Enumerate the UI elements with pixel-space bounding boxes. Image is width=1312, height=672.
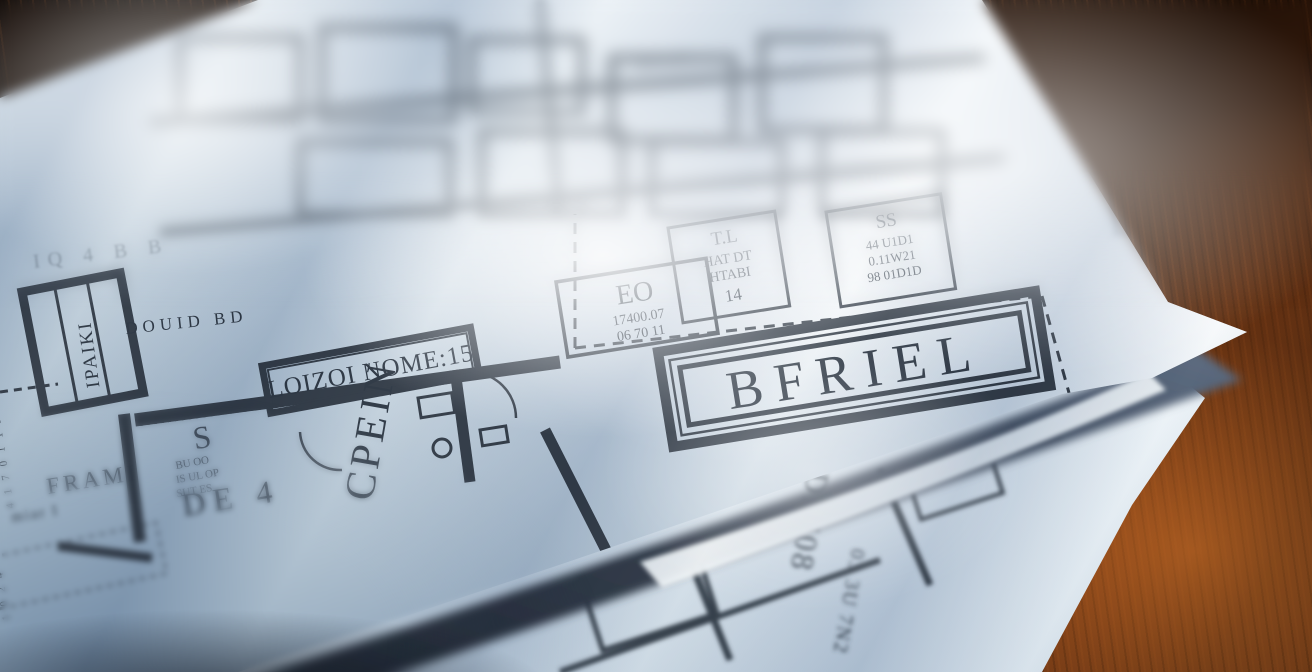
schedule-box-tl: T.L HAT DT HTABI 14 <box>668 211 790 323</box>
top-dimension-text: IQ 4 B B <box>32 234 170 273</box>
blurred-label-hadt: HA DT <box>634 48 689 73</box>
spec-s: S <box>190 418 214 457</box>
left-dimension-text: 4 1 7 0 1 1 3 <box>0 415 17 510</box>
left-dimension-text-2: 1 0 2 4 <box>0 569 13 621</box>
blurred-background-rooms: STA HA DT <box>150 0 1005 232</box>
note-miar: miar I <box>10 503 60 526</box>
blueprint-photo: DRI08 03 3U 7N2 <box>0 0 1312 672</box>
closet-room: IPAIKI <box>22 273 143 412</box>
closet-label: IPAIKI <box>74 320 104 390</box>
eo-title: EO <box>614 275 656 311</box>
room-label-douid: DOUID BD <box>124 306 248 338</box>
tl-title: T.L <box>709 225 739 250</box>
blurred-label-sta: STA <box>546 193 593 224</box>
ss-title: SS <box>874 209 898 233</box>
note-frami: FRAMI <box>45 460 141 499</box>
tl-line3: 14 <box>723 284 743 306</box>
